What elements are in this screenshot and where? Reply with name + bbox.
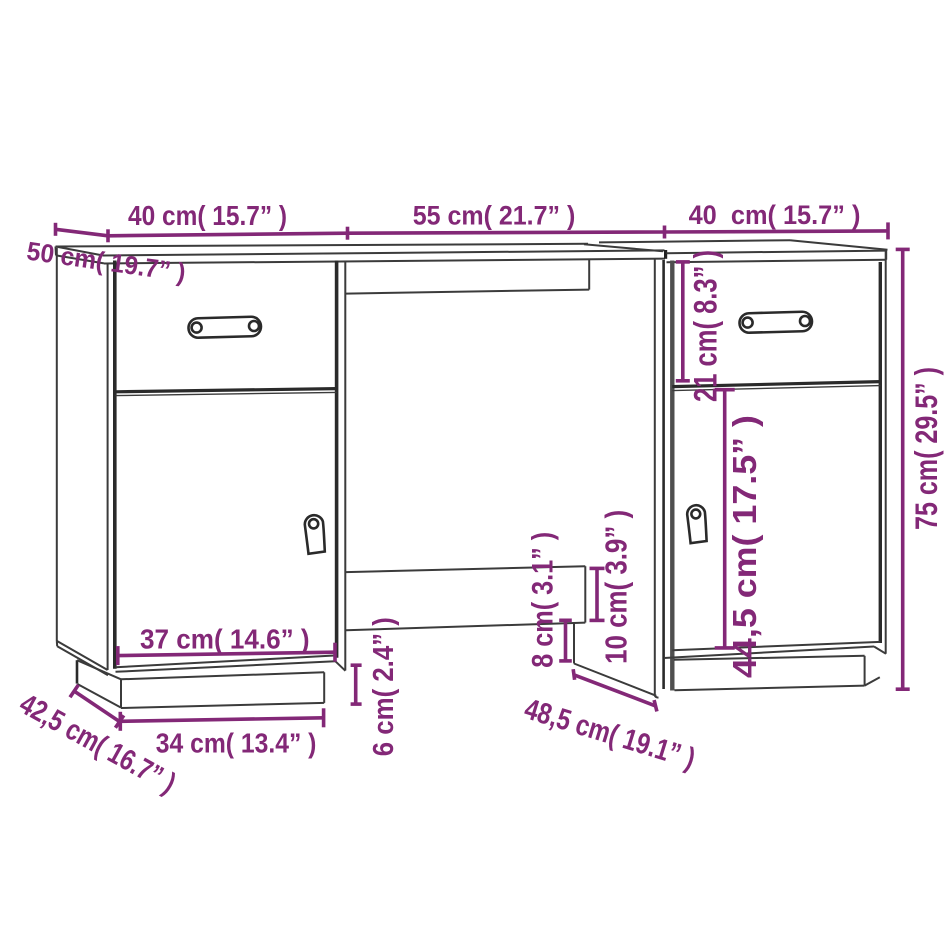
svg-text:55 cm( 21.7” ): 55 cm( 21.7” ) <box>413 201 576 231</box>
svg-text:34 cm( 13.4” ): 34 cm( 13.4” ) <box>156 728 317 759</box>
svg-text:40 cm( 15.7” ): 40 cm( 15.7” ) <box>689 200 861 230</box>
svg-text:40 cm( 15.7” ): 40 cm( 15.7” ) <box>128 200 287 231</box>
svg-text:10 cm( 3.9” ): 10 cm( 3.9” ) <box>599 510 634 664</box>
svg-text:8 cm( 3.1” ): 8 cm( 3.1” ) <box>526 532 559 668</box>
svg-text:75 cm( 29.5” ): 75 cm( 29.5” ) <box>908 367 944 530</box>
svg-text:6 cm( 2.4” ): 6 cm( 2.4” ) <box>368 617 400 756</box>
svg-text:21 cm( 8.3” ): 21 cm( 8.3” ) <box>688 250 724 402</box>
svg-text:44,5 cm( 17.5” ): 44,5 cm( 17.5” ) <box>727 415 764 678</box>
svg-text:37 cm( 14.6” ): 37 cm( 14.6” ) <box>140 623 310 654</box>
